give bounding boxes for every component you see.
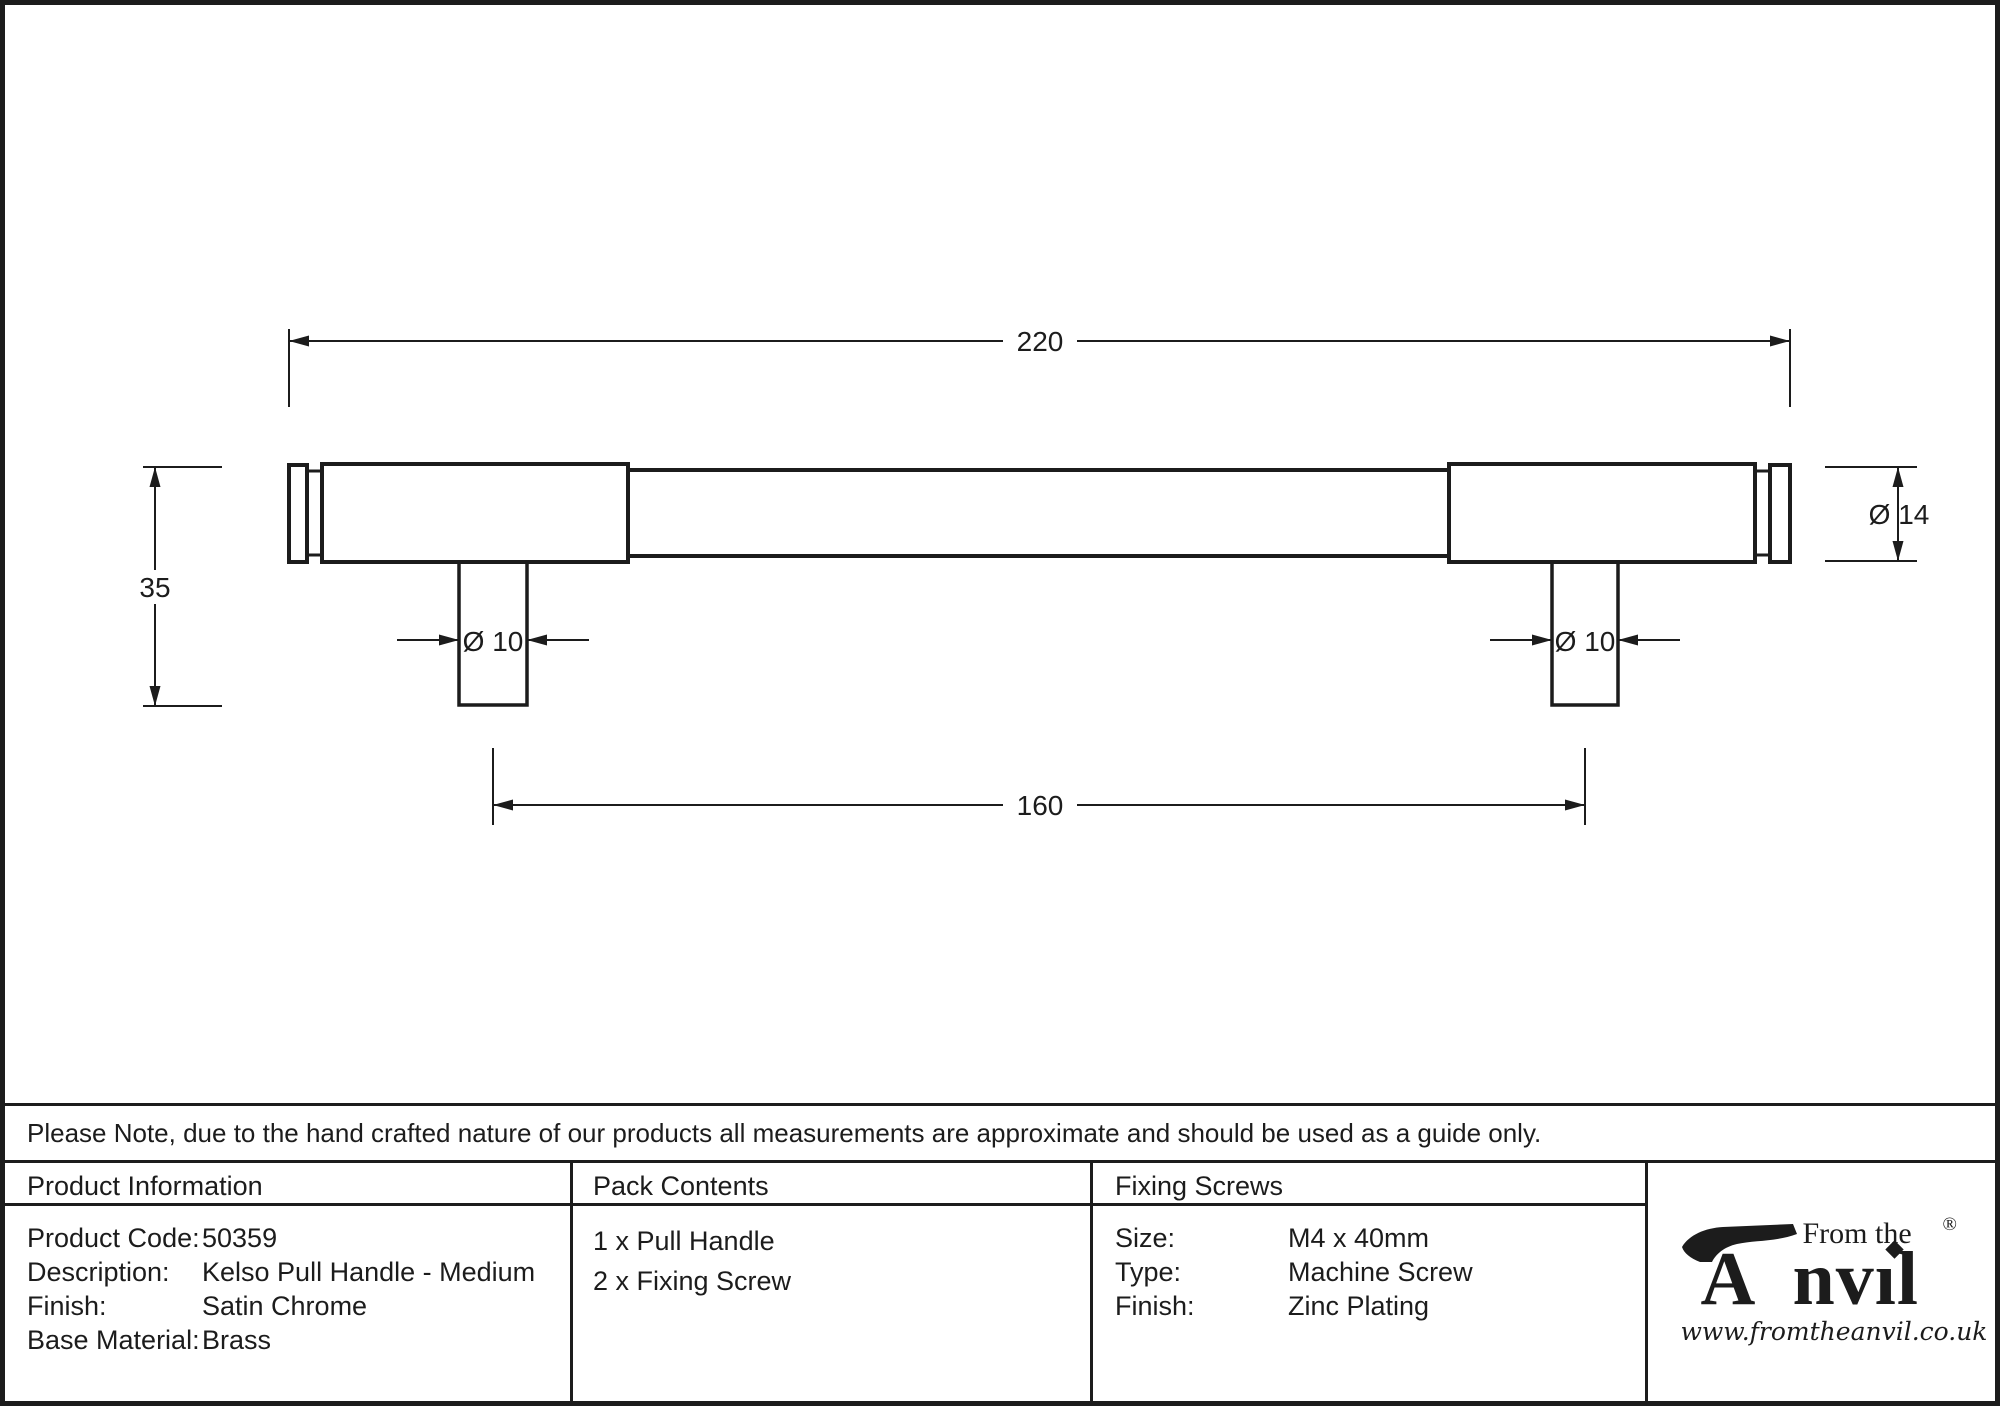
table-row: Size: M4 x 40mm	[1115, 1221, 1615, 1255]
dim-label-160: 160	[1017, 790, 1064, 821]
table-divider-2	[1090, 1163, 1093, 1401]
dim-label-35: 35	[139, 572, 170, 603]
logo-letter-a: A	[1701, 1241, 1756, 1317]
screw-finish-label: Finish:	[1115, 1289, 1288, 1323]
logo-website: www.fromtheanvil.co.uk	[1681, 1317, 1963, 1346]
table-row: Finish: Satin Chrome	[27, 1289, 547, 1323]
screw-size-value: M4 x 40mm	[1288, 1221, 1429, 1255]
pack-item: 2 x Fixing Screw	[593, 1261, 791, 1301]
table-row: Description: Kelso Pull Handle - Medium	[27, 1255, 547, 1289]
description-value: Kelso Pull Handle - Medium	[202, 1255, 535, 1289]
pack-contents-header: Pack Contents	[593, 1171, 769, 1202]
fixing-screws-header: Fixing Screws	[1115, 1171, 1283, 1202]
product-code-value: 50359	[202, 1221, 277, 1255]
product-information-body: Product Code: 50359 Description: Kelso P…	[27, 1221, 547, 1357]
base-material-value: Brass	[202, 1323, 271, 1357]
table-row: Base Material: Brass	[27, 1323, 547, 1357]
finish-label: Finish:	[27, 1289, 202, 1323]
fixing-screws-body: Size: M4 x 40mm Type: Machine Screw Fini…	[1115, 1221, 1615, 1323]
spec-sheet-page: { "colors": { "ink": "#1c1c1c", "paper":…	[0, 0, 2000, 1406]
product-information-header: Product Information	[27, 1171, 263, 1202]
description-label: Description:	[27, 1255, 202, 1289]
measurement-note-text: Please Note, due to the hand crafted nat…	[27, 1118, 1541, 1149]
finish-value: Satin Chrome	[202, 1289, 367, 1323]
dim-label-10-right: Ø 10	[1555, 626, 1616, 657]
registered-trademark-symbol: ®	[1943, 1215, 1957, 1234]
table-header-underline	[5, 1203, 1648, 1206]
screw-type-value: Machine Screw	[1288, 1255, 1473, 1289]
table-divider-1	[570, 1163, 573, 1401]
dim-label-14: Ø 14	[1869, 499, 1930, 530]
from-the-anvil-logo: A From the nvıl ® www.fromtheanvil.co.uk	[1681, 1219, 1963, 1345]
handle-bar	[289, 464, 1790, 562]
measurement-note-bar: Please Note, due to the hand crafted nat…	[5, 1103, 1995, 1163]
table-row: Finish: Zinc Plating	[1115, 1289, 1615, 1323]
dim-label-10-left: Ø 10	[463, 626, 524, 657]
pack-item: 1 x Pull Handle	[593, 1221, 791, 1261]
screw-finish-value: Zinc Plating	[1288, 1289, 1429, 1323]
logo-cell: A From the nvıl ® www.fromtheanvil.co.uk	[1648, 1163, 1995, 1401]
screw-type-label: Type:	[1115, 1255, 1288, 1289]
pull-handle-technical-drawing: 220 35 Ø 14 Ø 10	[0, 0, 2000, 1103]
pack-contents-body: 1 x Pull Handle 2 x Fixing Screw	[593, 1221, 791, 1301]
base-material-label: Base Material:	[27, 1323, 202, 1357]
dim-label-220: 220	[1017, 326, 1064, 357]
product-code-label: Product Code:	[27, 1221, 202, 1255]
table-row: Type: Machine Screw	[1115, 1255, 1615, 1289]
screw-size-label: Size:	[1115, 1221, 1288, 1255]
table-row: Product Code: 50359	[27, 1221, 547, 1255]
